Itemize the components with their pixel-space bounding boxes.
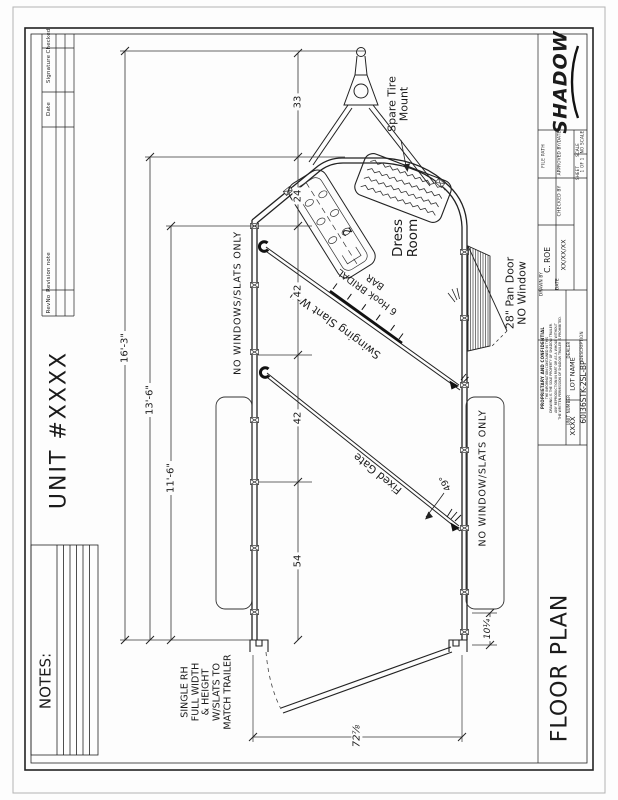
- unit-title: UNIT #XXXX: [48, 351, 73, 509]
- rev-header-signature: Signature: [46, 55, 52, 83]
- rear-door-open: [266, 647, 452, 713]
- swinging-slant-wall: [266, 247, 460, 390]
- description-value: 60I36STK-2SL-BP: [580, 360, 588, 423]
- slant-wall-hinge-icon: [259, 242, 268, 252]
- rev-header-revno: RevNo: [46, 295, 52, 314]
- saddle-rack: [285, 166, 379, 282]
- drawn-by-label: DRAWN BY: [540, 272, 545, 296]
- inner-frame: [31, 34, 587, 763]
- dim-bay2: 42: [292, 410, 303, 427]
- unit-number-value: XXXX: [570, 416, 578, 435]
- outer-frame: [25, 28, 593, 770]
- dress-room-line2: Room: [406, 219, 421, 257]
- dimension-lines: [125, 51, 490, 737]
- dim-nose: 24: [292, 188, 303, 205]
- dim-bay1: 42: [292, 283, 303, 300]
- file-path-label: FILE PATH: [541, 144, 546, 168]
- dim-rear-opening: 72⅞: [351, 723, 362, 749]
- dress-room-label: Dress Room: [391, 219, 421, 257]
- extension-lines: [120, 51, 497, 742]
- dim-overall-length: 16'-3": [119, 331, 130, 365]
- left-fender: [216, 397, 252, 609]
- rev-header-checked: Checked: [46, 29, 52, 54]
- dimension-ticks: [121, 47, 494, 741]
- rear-door-note-line: W/SLATS TO: [212, 654, 223, 729]
- rev-header-revision-note: Revision note: [46, 252, 52, 292]
- dealer-label: DEALER: [567, 341, 571, 358]
- sheet-value: 1 OF 1: [581, 158, 586, 173]
- fixed-gate: [267, 373, 460, 531]
- spare-tire: [352, 151, 454, 225]
- checked-by-label: CHECKED BY: [557, 186, 562, 217]
- fixed-gate-hinge-icon: [260, 368, 269, 378]
- spare-tire-line2: Mount: [399, 76, 411, 132]
- scale-value: NO SCALE: [581, 131, 586, 154]
- fixed-gate-latch-icon: [447, 509, 461, 532]
- dress-room-line1: Dress: [391, 219, 406, 257]
- date-value: XX/XX/XX: [560, 239, 567, 270]
- tongue-coupler: [309, 48, 434, 187]
- proprietary-text: THE INFORMATION CONTAINED IN THIS DRAWIN…: [545, 316, 563, 419]
- rev-header-date: Date: [46, 102, 52, 116]
- page-edge: [13, 7, 605, 793]
- dim-bay3: 54: [292, 553, 303, 570]
- logo-underline-swoosh: [572, 46, 578, 118]
- dim-tongue: 33: [292, 94, 303, 111]
- rear-door-brackets: [250, 640, 467, 652]
- trailer-walls: [252, 158, 467, 640]
- dim-rear-offset: 10¼: [483, 617, 493, 641]
- dim-box-length: 13'-6": [144, 383, 155, 417]
- pan-door-line2: NO Window: [517, 257, 529, 329]
- pan-door-label: 28" Pan Door NO Window: [505, 257, 530, 329]
- wall-posts: [251, 178, 469, 634]
- approved-by-label: APPROVED BY/DATE: [558, 131, 563, 176]
- description-label: DESCRIPTION: [580, 331, 584, 360]
- pan-door: [468, 246, 507, 351]
- drawn-by-value: C. ROE: [544, 247, 552, 273]
- company-logo: SHADOW: [550, 30, 571, 133]
- spare-tire-mount-label: Spare Tire Mount: [387, 76, 412, 132]
- notes-box: [31, 545, 98, 755]
- pan-door-hinge-marks: [448, 288, 460, 302]
- view-title: FLOOR PLAN: [549, 594, 574, 743]
- left-wall-note: NO WINDOWS/SLATS ONLY: [234, 231, 245, 375]
- notes-label: NOTES:: [38, 653, 55, 709]
- drawing-linework: [0, 0, 618, 800]
- dim-interior-length: 11'-6": [165, 461, 176, 495]
- dealer-value: LOT NAME: [569, 357, 576, 391]
- rear-door-note-line: MATCH TRAILER: [223, 654, 234, 729]
- drawing-sheet: UNIT #XXXX NOTES: FLOOR PLAN Checked Sig…: [0, 0, 618, 800]
- rear-door-note: SINGLE RH FULL WIDTH & HEIGHT W/SLATS TO…: [180, 654, 233, 729]
- proprietary-line: THE WRITTEN PERMISSION OF SHADOW TRAILER…: [558, 316, 562, 419]
- right-wall-note: NO WINDOW/SLATS ONLY: [479, 410, 490, 547]
- spare-tire-leader: [401, 140, 410, 172]
- date-label: DATE: [556, 278, 561, 290]
